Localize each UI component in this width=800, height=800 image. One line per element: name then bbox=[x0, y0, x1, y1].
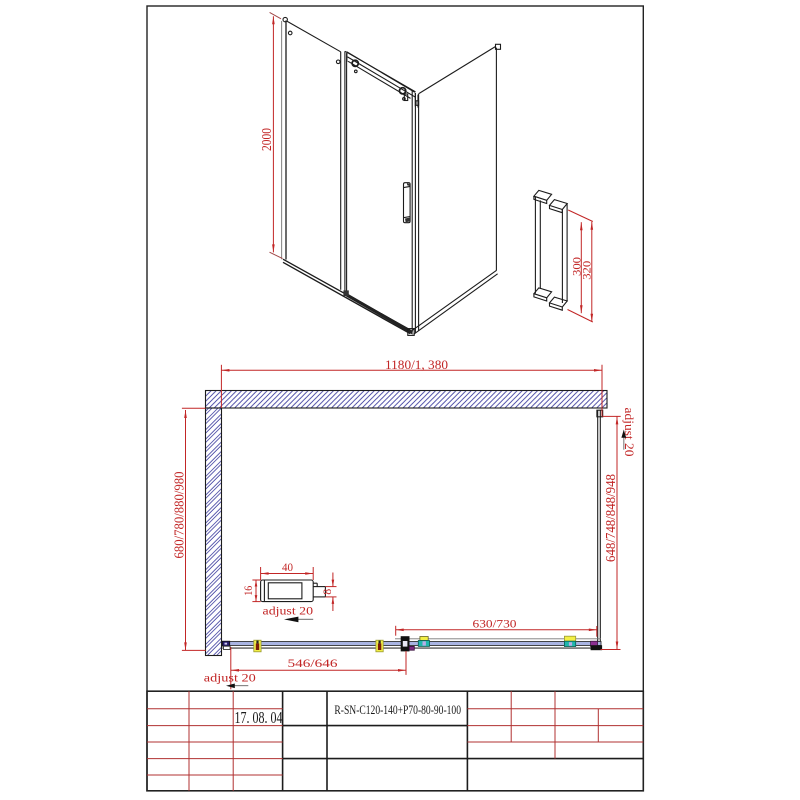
svg-text:680/780/880/980: 680/780/880/980 bbox=[172, 471, 187, 558]
svg-text:648/748/848/948: 648/748/848/948 bbox=[603, 474, 618, 562]
svg-text:1180/1, 380: 1180/1, 380 bbox=[385, 358, 448, 372]
svg-text:17. 08. 04: 17. 08. 04 bbox=[235, 708, 283, 727]
svg-text:16: 16 bbox=[243, 586, 255, 596]
svg-text:546/646: 546/646 bbox=[288, 656, 338, 670]
svg-text:R-SN-C120-140+P70-80-90-100: R-SN-C120-140+P70-80-90-100 bbox=[334, 703, 461, 717]
svg-text:adjust 20: adjust 20 bbox=[204, 673, 256, 685]
svg-text:40: 40 bbox=[282, 562, 293, 574]
svg-text:2000: 2000 bbox=[259, 128, 274, 151]
svg-text:adjust 20: adjust 20 bbox=[263, 606, 314, 618]
svg-text:630/730: 630/730 bbox=[473, 616, 517, 630]
svg-text:8: 8 bbox=[322, 588, 334, 594]
svg-text:320: 320 bbox=[582, 261, 594, 280]
